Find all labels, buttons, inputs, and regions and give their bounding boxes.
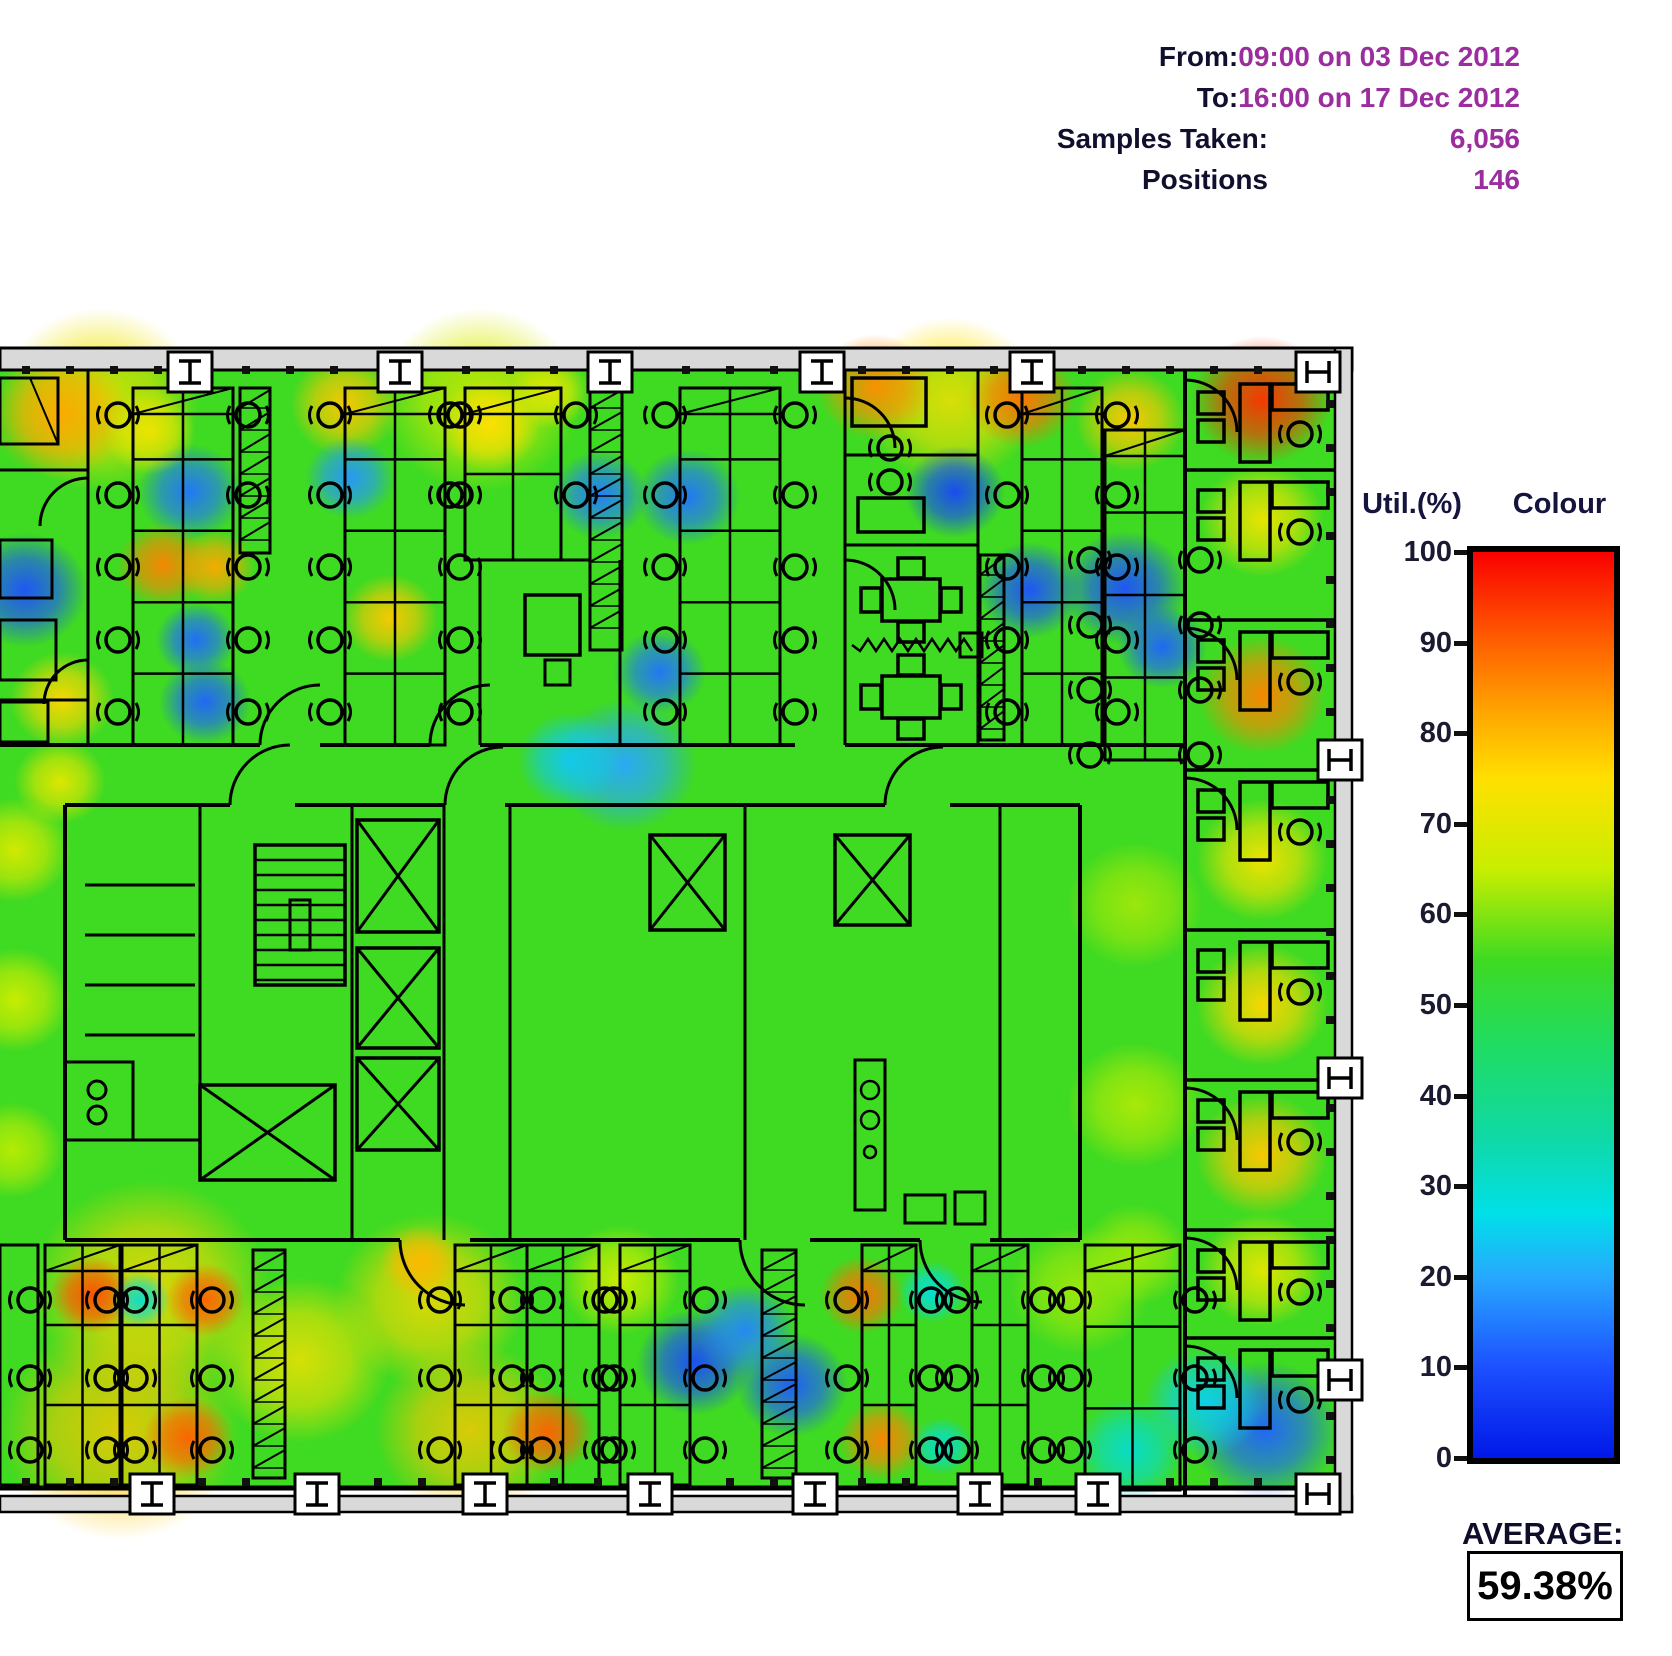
legend-gradient-bar [1467,546,1620,1464]
column-marker [1318,740,1362,780]
average-label: AVERAGE: [1462,1516,1632,1552]
header-value: 09:00 on 03 Dec 2012 [1238,36,1520,77]
column-marker [588,352,632,392]
heat-blob [552,451,648,539]
legend-tick-mark [1454,1456,1467,1461]
column-marker [628,1474,672,1514]
column-marker [1076,1474,1120,1514]
column-marker [295,1474,339,1514]
legend-tick-mark [1454,1003,1467,1008]
heat-blob [905,446,1005,538]
column-marker [378,352,422,392]
legend-tick-label: 100 [1362,536,1452,568]
heat-blob [156,603,236,677]
legend-tick-label: 90 [1362,627,1452,659]
column-marker [1318,1058,1362,1098]
header-label: From: [1159,36,1238,77]
heat-blob [1196,944,1328,1066]
legend-tick-label: 50 [1362,989,1452,1021]
legend-tick-label: 60 [1362,898,1452,930]
heat-blob [1067,1042,1203,1168]
legend-tick-label: 80 [1362,717,1452,749]
header-value: 16:00 on 17 Dec 2012 [1238,77,1520,118]
heat-blob [175,530,255,604]
column-marker [1318,1360,1362,1400]
legend-tick-label: 70 [1362,808,1452,840]
header-label: To: [1197,77,1238,118]
column-marker [130,1474,174,1514]
utilisation-heatmap-report: { "header": { "rows": [ {"label": "From:… [0,0,1672,1656]
column-marker [793,1474,837,1514]
legend-tick-mark [1454,912,1467,917]
legend-tick-mark [1454,550,1467,555]
heat-blob [143,1397,233,1479]
header-label: Positions [1142,159,1268,200]
heat-blob [14,740,106,824]
column-marker [1010,352,1054,392]
header-value: 146 [1268,159,1520,200]
legend-tick-label: 20 [1362,1261,1452,1293]
legend-tick-mark [1454,1094,1467,1099]
legend-colour-label: Colour [1497,488,1622,521]
heat-blob [1196,1094,1328,1216]
average-value: 59.38% [1470,1554,1620,1618]
header-label: Samples Taken: [1057,118,1268,159]
column-marker [958,1474,1002,1514]
header-value: 6,056 [1268,118,1520,159]
header-row-1: To:16:00 on 17 Dec 2012 [1057,77,1520,118]
heat-blob [1080,1204,1190,1306]
legend-tick-label: 40 [1362,1080,1452,1112]
heat-blob [518,712,622,808]
legend-tick-label: 10 [1362,1351,1452,1383]
heat-blob [695,1284,795,1376]
legend-tick-mark [1454,641,1467,646]
legend-tick-label: 0 [1362,1442,1452,1474]
column-marker [463,1474,507,1514]
average-value-box: 59.38% [1467,1551,1623,1621]
legend-tick-label: 30 [1362,1170,1452,1202]
legend-tick-mark [1454,822,1467,827]
header-row-3: Positions146 [1057,159,1520,200]
legend-util-label: Util.(%) [1352,488,1472,521]
heat-blob [342,574,438,662]
column-marker [1296,352,1340,392]
legend-tick-mark [1454,731,1467,736]
legend-tick-mark [1454,1275,1467,1280]
report-header: From:09:00 on 03 Dec 2012To:16:00 on 17 … [1057,36,1520,200]
heat-blob [1067,842,1203,968]
heat-blob [305,437,395,519]
legend-tick-mark [1454,1184,1467,1189]
heat-blob [1198,636,1326,754]
column-marker [168,352,212,392]
header-row-2: Samples Taken:6,056 [1057,118,1520,159]
legend-tick-mark [1454,1365,1467,1370]
column-marker [1296,1474,1340,1514]
column-marker [800,352,844,392]
header-row-0: From:09:00 on 03 Dec 2012 [1057,36,1520,77]
